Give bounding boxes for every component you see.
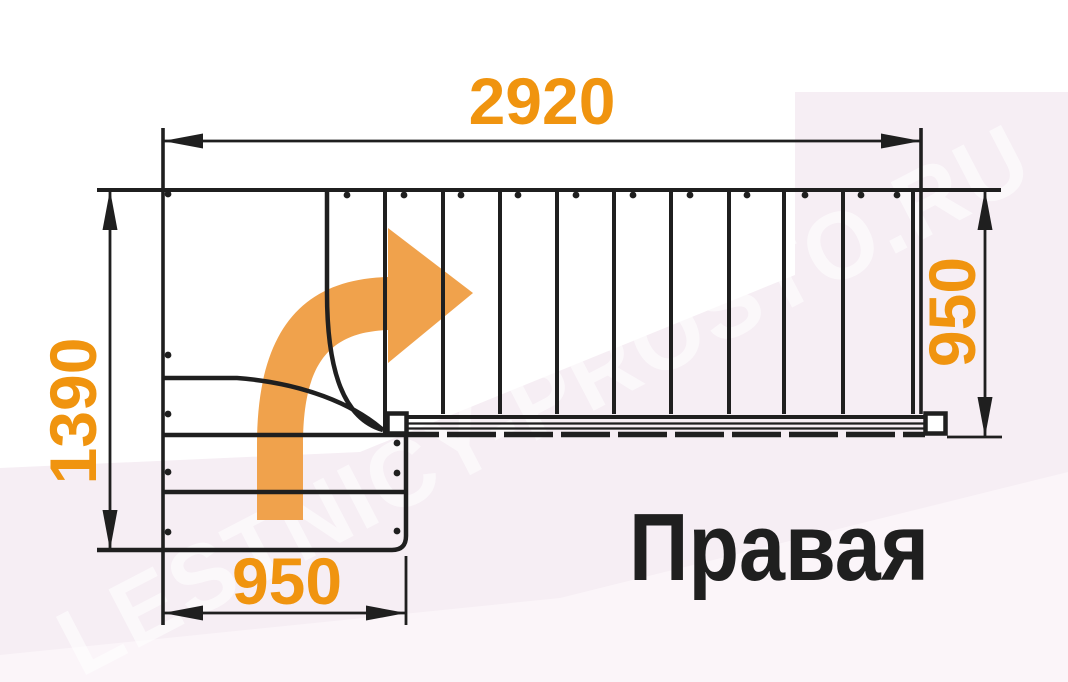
staircase-plan-svg: LESTNICY-PROSTO.RU <box>0 0 1068 682</box>
dimension-label-total-length: 2920 <box>469 64 616 138</box>
newel-post-end <box>926 414 946 434</box>
dimension-label-total-depth: 1390 <box>36 338 110 485</box>
dimension-label-upper-flight-width: 950 <box>915 257 989 367</box>
newel-post-corner <box>388 414 407 434</box>
dimension-label-lower-flight-width: 950 <box>232 544 342 618</box>
orientation-label: Правая <box>629 494 929 601</box>
staircase-plan-page: LESTNICY-PROSTO.RU <box>0 0 1068 682</box>
